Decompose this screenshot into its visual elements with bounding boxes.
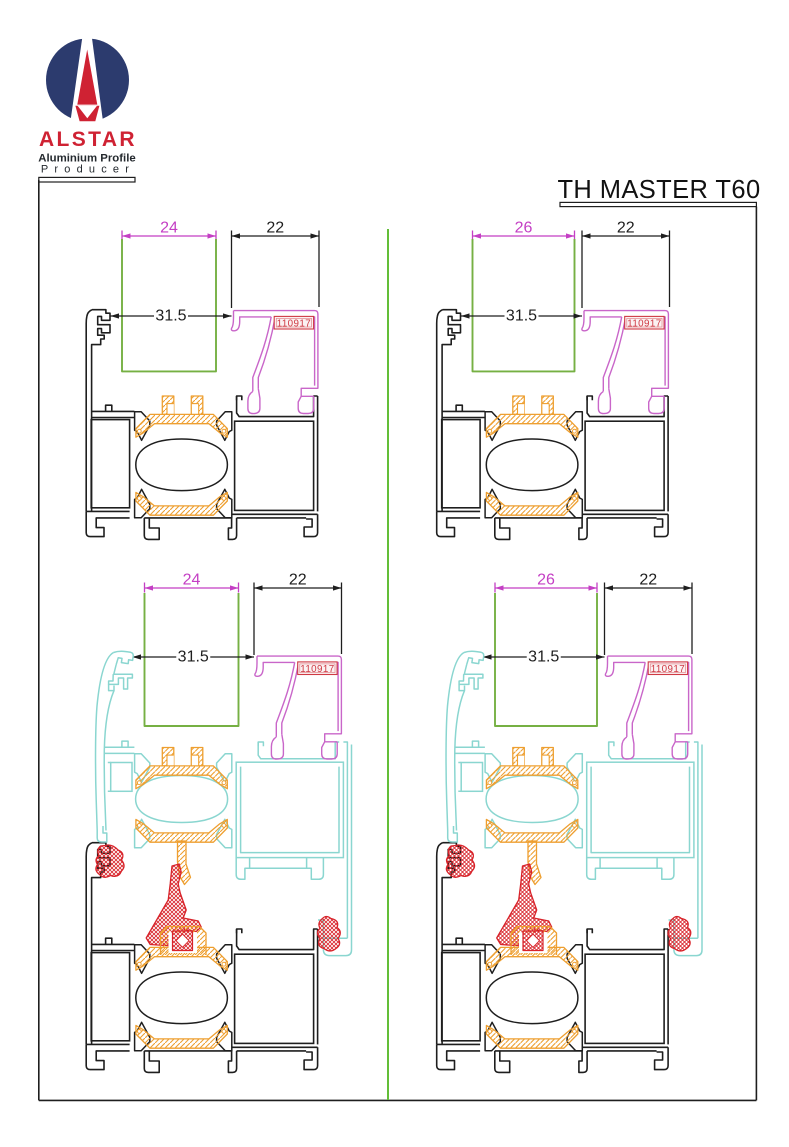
svg-text:31.5: 31.5 — [528, 649, 559, 666]
svg-text:31.5: 31.5 — [506, 308, 537, 325]
svg-text:22: 22 — [639, 572, 657, 589]
svg-text:24: 24 — [183, 572, 201, 589]
svg-text:26: 26 — [515, 220, 533, 237]
svg-text:22: 22 — [617, 220, 635, 237]
svg-text:31.5: 31.5 — [178, 649, 209, 666]
svg-text:110917: 110917 — [651, 664, 685, 675]
svg-text:31.5: 31.5 — [155, 308, 186, 325]
svg-text:Producer: Producer — [41, 164, 135, 176]
svg-text:22: 22 — [289, 572, 307, 589]
svg-text:ALSTAR: ALSTAR — [39, 128, 137, 151]
svg-text:110917: 110917 — [627, 318, 661, 329]
svg-text:22: 22 — [266, 220, 284, 237]
svg-text:24: 24 — [160, 220, 178, 237]
svg-text:TH MASTER T60: TH MASTER T60 — [557, 176, 760, 204]
svg-text:26: 26 — [537, 572, 555, 589]
svg-text:110917: 110917 — [300, 664, 334, 675]
svg-text:110917: 110917 — [277, 318, 311, 329]
